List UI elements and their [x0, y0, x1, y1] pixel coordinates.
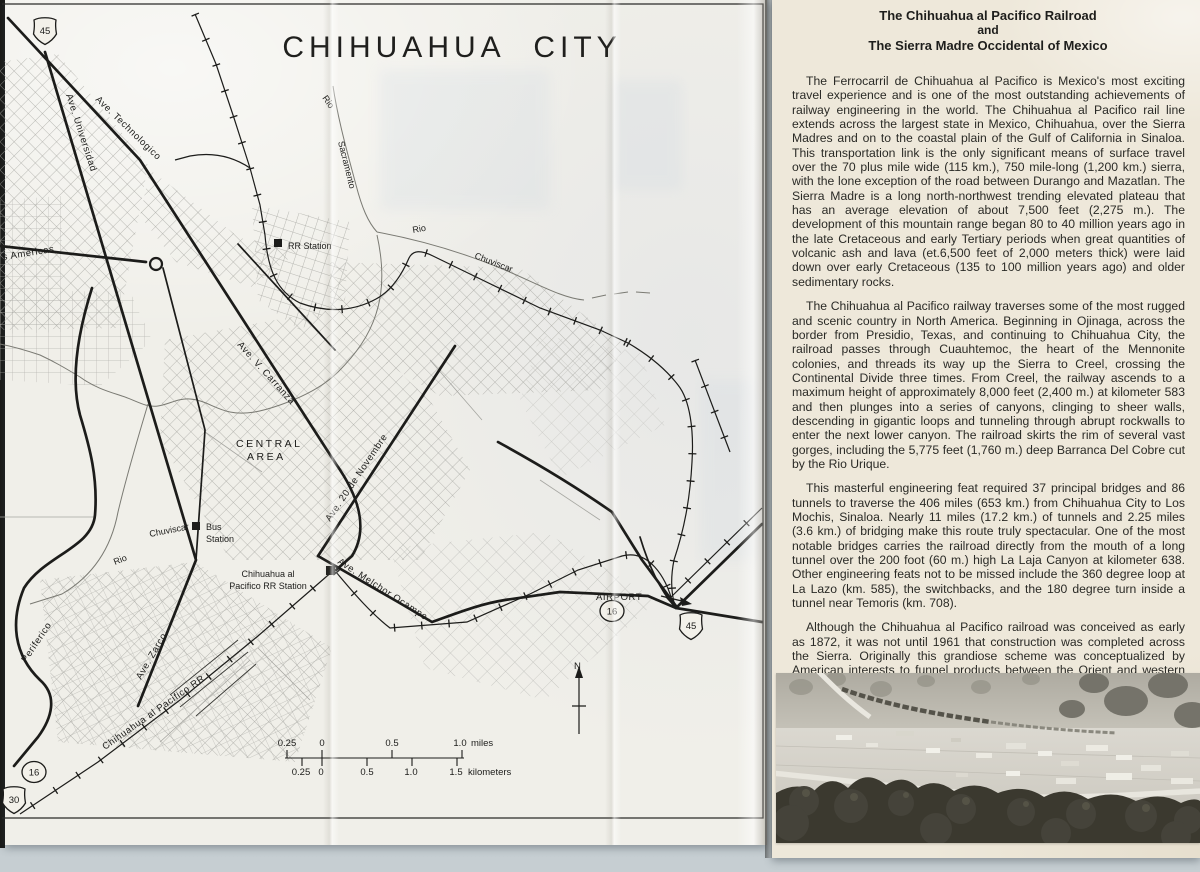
scale-bar: 0.25 0 0.5 1.0 miles 0.25 0 0.5 1.0 1.5 … [278, 738, 512, 778]
svg-text:1.0: 1.0 [404, 767, 417, 778]
svg-text:0.5: 0.5 [360, 767, 373, 778]
label-pacifico-station-1: Chihuahua al [241, 569, 294, 579]
us-45-shield-east-icon: 45 [680, 613, 703, 640]
svg-text:45: 45 [686, 621, 697, 632]
svg-text:45: 45 [40, 26, 51, 37]
svg-text:30: 30 [9, 795, 20, 806]
svg-text:0.5: 0.5 [385, 738, 398, 749]
svg-text:miles: miles [471, 738, 493, 749]
svg-text:16: 16 [607, 607, 618, 618]
label-rio-sw: Rio [112, 553, 128, 567]
article-title-line2: and [790, 23, 1186, 38]
label-rio-chuviscar-sw: Chuviscar [148, 522, 189, 539]
paragraph: The Ferrocarril de Chihuahua al Pacifico… [792, 74, 1185, 289]
us-30-shield-icon: 30 [3, 787, 26, 814]
map-page: CHIHUAHUA CITY Ave. Technologico Ave. Un… [5, 0, 767, 845]
map-title: CHIHUAHUA CITY [282, 31, 621, 64]
svg-text:kilometers: kilometers [468, 767, 512, 778]
label-airport: AIRPORT [596, 592, 642, 603]
svg-text:0: 0 [318, 767, 323, 778]
label-rio-sacramento: Sacramento [336, 140, 357, 190]
pacifico-station-marker [326, 566, 335, 575]
north-arrow-icon: N [572, 661, 586, 734]
street-grid [0, 54, 665, 762]
article-title: The Chihuahua al Pacifico Railroad and T… [772, 0, 1200, 53]
paragraph: The Chihuahua al Pacifico railway traver… [792, 299, 1185, 471]
svg-text:0.25: 0.25 [292, 767, 311, 778]
bus-station-marker [192, 522, 200, 530]
label-pacifico-station-2: Pacifico RR Station [229, 581, 307, 591]
article-page: The Chihuahua al Pacifico Railroad and T… [772, 0, 1200, 858]
label-rio-sacramento-rio: Rio [320, 93, 336, 110]
aerial-town-photo-image [776, 673, 1200, 843]
svg-text:0.25: 0.25 [278, 738, 297, 749]
svg-text:16: 16 [29, 768, 40, 779]
mex-16-shield-sw-icon: 16 [22, 762, 46, 783]
label-rio-chuviscar-ne-rio: Rio [412, 223, 427, 235]
roundabout [150, 258, 162, 270]
article-title-line1: The Chihuahua al Pacifico Railroad [790, 8, 1186, 23]
label-central-area-2: AREA [247, 451, 286, 463]
svg-text:0: 0 [319, 738, 324, 749]
chihuahua-city-map: CHIHUAHUA CITY Ave. Technologico Ave. Un… [0, 0, 768, 845]
paragraph: This masterful engineering feat required… [792, 481, 1185, 610]
svg-text:1.0: 1.0 [453, 738, 466, 749]
svg-text:1.5: 1.5 [449, 767, 462, 778]
us-45-shield-icon: 45 [34, 18, 57, 45]
label-bus-station-2: Station [206, 534, 234, 544]
label-bus-station-1: Bus [206, 522, 222, 532]
scanned-brochure: CHIHUAHUA CITY Ave. Technologico Ave. Un… [0, 0, 1200, 872]
rr-station-marker [274, 239, 282, 247]
mex-16-shield-icon: 16 [600, 601, 624, 622]
article-title-line3: The Sierra Madre Occidental of Mexico [790, 38, 1186, 53]
label-rr-station: RR Station [288, 241, 332, 251]
label-central-area-1: CENTRAL [236, 438, 303, 450]
aerial-town-photo [776, 673, 1200, 843]
